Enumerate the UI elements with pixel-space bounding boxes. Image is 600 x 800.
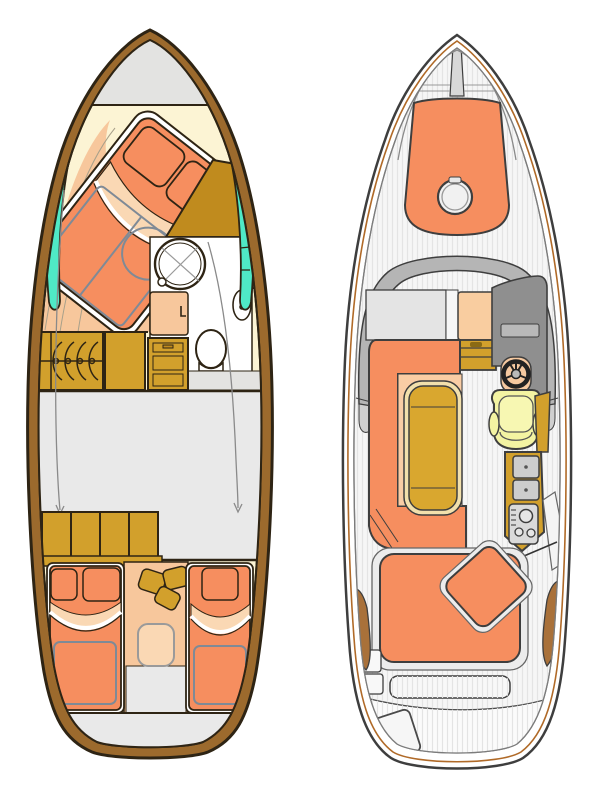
- seat-cushion: [499, 396, 533, 432]
- drawer-handle: [163, 345, 173, 348]
- galley-cabinet: [105, 332, 145, 390]
- burner-small: [515, 528, 523, 536]
- pillow: [51, 569, 77, 600]
- side-console: [535, 392, 550, 452]
- companionway-step: [138, 624, 174, 666]
- sink-hatch-knob: [524, 488, 528, 492]
- pillow: [83, 568, 120, 601]
- yacht-deck-plans-canvas: [0, 0, 600, 800]
- burner-large: [520, 510, 533, 523]
- pillow: [202, 568, 238, 600]
- locker-door: [150, 292, 188, 335]
- wheel-hub: [512, 370, 521, 379]
- burner-small: [527, 529, 535, 537]
- toilet: [196, 330, 226, 368]
- companionway: [458, 292, 496, 340]
- wet-locker-shelf: [188, 371, 262, 390]
- stove: [509, 504, 538, 544]
- deck-hatch: [438, 180, 472, 214]
- washbasin-tap: [158, 278, 166, 286]
- cabin-roof-strip: [446, 290, 458, 340]
- sink-hatch-knob: [524, 465, 528, 469]
- deck-hatch-latch: [449, 177, 461, 183]
- cabin-roof: [366, 290, 446, 340]
- anchor-locker-seam: [450, 46, 464, 96]
- cockpit-table: [409, 386, 457, 510]
- aft-bench-planks: [390, 676, 510, 698]
- corridor-aft-step: [126, 666, 186, 713]
- seat-bolster: [489, 412, 499, 436]
- instrument-panel: [501, 324, 539, 337]
- step-handle: [470, 342, 482, 347]
